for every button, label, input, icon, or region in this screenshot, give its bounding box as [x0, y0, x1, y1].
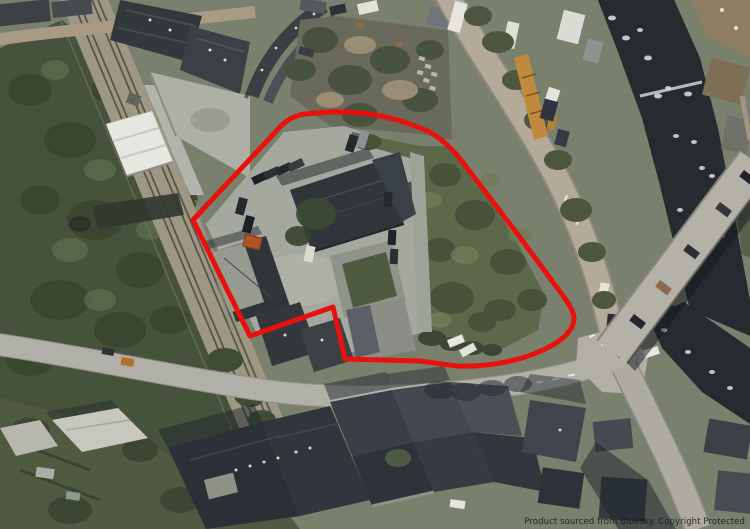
attribution-text: Product sourced from Bluesky. Copyright …	[524, 518, 745, 527]
aerial-photo-canvas	[0, 0, 750, 529]
aerial-photo: Product sourced from Bluesky. Copyright …	[0, 0, 750, 529]
